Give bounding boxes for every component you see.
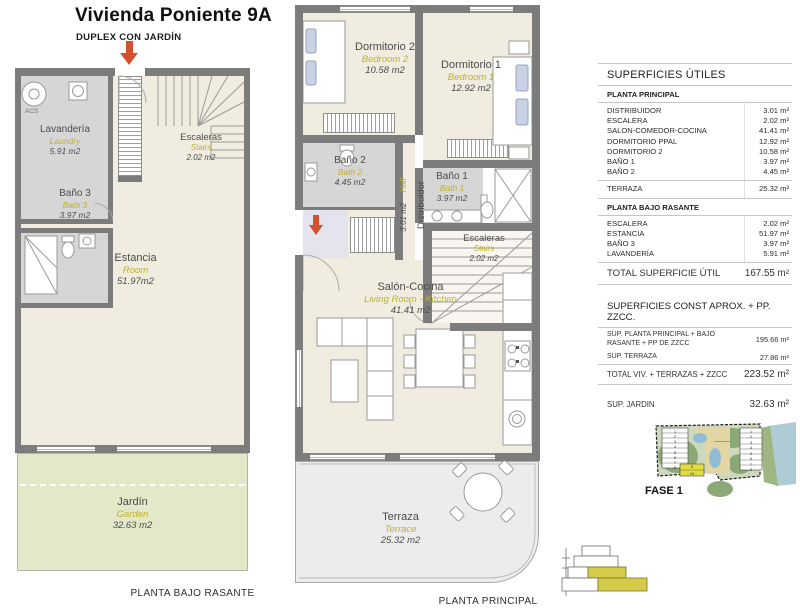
total-label: TOTAL VIV. + TERRAZAS + ZZCC <box>607 370 727 379</box>
room-label-bano2: Baño 2 Bath 2 4.45 m2 <box>317 155 383 187</box>
room-name: Escaleras <box>445 233 523 244</box>
total-value: 223.52 m² <box>744 369 789 380</box>
row-label: BAÑO 3 <box>607 239 635 249</box>
room-area: 2.02 m2 <box>155 153 247 162</box>
arrow-head <box>309 225 323 235</box>
garden-row: SUP. JARDIN 32.63 m² <box>598 385 792 412</box>
window <box>37 445 95 453</box>
room-name-en: Laundry <box>21 136 109 146</box>
room-label-bano1: Baño 1 Bath 1 3.97 m2 <box>423 171 481 203</box>
row-value: 41.41 m² <box>745 126 789 136</box>
wall-segment <box>423 223 532 231</box>
room-area: 32.63 m2 <box>70 520 195 531</box>
room-name: Estancia <box>73 252 198 265</box>
total-row: TOTAL SUPERFICIE ÚTIL 167.55 m² <box>598 263 792 284</box>
row-value: 10.58 m² <box>745 147 789 157</box>
room-name: Dormitorio 2 <box>340 41 430 54</box>
room-name-en: Bedroom 2 <box>340 54 430 65</box>
total-label: TOTAL SUPERFICIE ÚTIL <box>607 268 720 279</box>
room-label-bano3: Baño 3 Bath 3 3.97 m2 <box>43 188 107 220</box>
room-area: 25.32 m2 <box>353 535 448 546</box>
row-label: SALON-COMEDOR-COCINA <box>607 126 707 136</box>
wall-segment <box>303 135 415 143</box>
row-label: ESCALERA <box>607 219 648 229</box>
room-label-escaleras: Escaleras Stairs 2.02 m2 <box>155 132 247 162</box>
row-label: DISTRIBUIDOR <box>607 106 661 116</box>
unit-number: 10 <box>680 471 704 476</box>
row-value: 2.02 m² <box>745 219 789 229</box>
table-row: ESCALERA2.02 m² <box>598 219 792 229</box>
wall-segment <box>410 5 470 13</box>
room-name-en: Bath 3 <box>43 200 107 210</box>
room-name-en: Stairs <box>445 244 523 253</box>
row-label: TERRAZA <box>607 184 642 194</box>
wall-segment <box>95 445 117 453</box>
row-value: 3.97 m² <box>745 239 789 249</box>
wall-segment <box>295 407 303 453</box>
arrow-head <box>120 53 138 65</box>
wall-segment <box>295 255 303 350</box>
row-value: 4.45 m² <box>745 167 789 177</box>
room-name: Escaleras <box>155 132 247 143</box>
room-name-en: Garden <box>70 509 195 520</box>
floor-plan-lower: ACS Lavandería Laundry 5.91 m2 Escaleras… <box>15 68 250 575</box>
table-row: DORMITORIO 210.58 m² <box>598 147 792 157</box>
building-section-diagram <box>552 536 687 602</box>
table-body: ESCALERA2.02 m² ESTANCIA51.97 m² BAÑO 33… <box>598 216 792 263</box>
room-area: 4.45 m2 <box>317 177 383 187</box>
unit-number: 5 <box>740 451 762 456</box>
unit-number: 3 <box>740 440 762 445</box>
row-value: 5.91 m² <box>745 249 789 259</box>
row-value: 51.97 m² <box>745 229 789 239</box>
room-name-en: Stairs <box>155 143 247 152</box>
table-row: DORMITORIO PPAL12.92 m² <box>598 137 792 147</box>
unit-number: 9 <box>680 464 704 469</box>
room-label-lavanderia: Lavandería Laundry 5.91 m2 <box>21 124 109 156</box>
room-name: Terraza <box>353 511 448 524</box>
room-area: 51.97m2 <box>73 276 198 287</box>
row-value: 27.86 m² <box>745 353 789 362</box>
table-body: TERRAZA25.32 m² <box>598 181 792 197</box>
arrow-stem <box>313 215 319 225</box>
room-name-en: Room <box>73 265 198 276</box>
room-area: 10.58 m2 <box>340 65 430 76</box>
row-value: 195.66 m² <box>745 335 789 344</box>
row-value: 12.92 m² <box>745 137 789 147</box>
wall-segment <box>244 68 250 453</box>
caption-lower-plan: PLANTA BAJO RASANTE <box>110 588 275 599</box>
floor-plan-sheet: Vivienda Poniente 9A DUPLEX CON JARDÍN <box>0 0 800 609</box>
table-row: TERRAZA25.32 m² <box>598 184 792 194</box>
room-name: Lavandería <box>21 124 109 136</box>
window <box>400 453 495 461</box>
table-row: SALON-COMEDOR-COCINA41.41 m² <box>598 126 792 136</box>
room-area: 3.01 m2 <box>399 203 408 232</box>
window <box>470 5 513 13</box>
table-body: DISTRIBUIDOR3.01 m² ESCALERA2.02 m² SALO… <box>598 103 792 180</box>
table-row: LAVANDERÍA5.91 m² <box>598 249 792 259</box>
room-label-estancia: Estancia Room 51.97m2 <box>73 252 198 287</box>
table-row: ESTANCIA51.97 m² <box>598 229 792 239</box>
window <box>340 5 410 13</box>
row-value: 3.01 m² <box>745 106 789 116</box>
room-name: Dormitorio 1 <box>425 59 517 72</box>
unit-number: 2 <box>740 434 762 439</box>
window <box>295 350 303 407</box>
room-label-terraza: Terraza Terrace 25.32 m2 <box>353 511 448 546</box>
room-name: Baño 1 <box>423 171 481 183</box>
wall-segment <box>145 68 250 76</box>
row-value: 3.97 m² <box>745 157 789 167</box>
wall-segment <box>423 160 532 168</box>
floor-plan-main: Dormitorio 2 Bedroom 2 10.58 m2 Dormitor… <box>295 5 540 590</box>
row-label: SUP. TERRAZA <box>607 353 657 362</box>
table-title: SUPERFICIES CONST APROX. + PP. ZZCC. <box>598 296 792 327</box>
wall-segment <box>295 5 303 210</box>
section-heading: PLANTA PRINCIPAL <box>598 86 792 102</box>
room-area: 5.91 m2 <box>21 146 109 156</box>
wall-segment <box>15 445 37 453</box>
room-label-escaleras-main: Escaleras Stairs 2.02 m2 <box>445 233 523 263</box>
room-name: Distribuidor <box>416 181 427 229</box>
row-value: 2.02 m² <box>745 116 789 126</box>
row-label: LAVANDERÍA <box>607 249 654 259</box>
row-label: BAÑO 2 <box>607 167 635 177</box>
room-name: Jardín <box>70 496 195 509</box>
wall-segment <box>495 453 540 461</box>
room-area: 3.97 m2 <box>423 193 481 203</box>
table-row: BAÑO 13.97 m² <box>598 157 792 167</box>
room-name-en: Bath 1 <box>423 183 481 193</box>
row-label: SUP. JARDIN <box>607 400 655 409</box>
room-area: 3.97 m2 <box>43 210 107 220</box>
site-plan-highlight-unit-numbers: 910 <box>680 464 704 476</box>
section-heading: PLANTA BAJO RASANTE <box>598 199 792 215</box>
room-label-jardin: Jardín Garden 32.63 m2 <box>70 496 195 531</box>
room-name-en: Living Room - Kitchen <box>343 294 478 305</box>
table-row: BAÑO 24.45 m² <box>598 167 792 177</box>
page-title: Vivienda Poniente 9A <box>75 5 272 27</box>
room-area: 2.02 m2 <box>445 254 523 263</box>
divider <box>598 284 792 285</box>
room-label-dormitorio2: Dormitorio 2 Bedroom 2 10.58 m2 <box>340 41 430 76</box>
wall-segment <box>118 176 142 182</box>
unit-number: 4 <box>740 445 762 450</box>
total-row: TOTAL VIV. + TERRAZAS + ZZCC 223.52 m² <box>598 365 792 384</box>
room-label-dormitorio1: Dormitorio 1 Bedroom 1 12.92 m2 <box>425 59 517 94</box>
row-value: 25.32 m² <box>745 184 789 194</box>
surfaces-const-table: SUPERFICIES CONST APROX. + PP. ZZCC. SUP… <box>598 296 792 412</box>
wall-segment <box>295 453 310 461</box>
row-label: ESTANCIA <box>607 229 644 239</box>
room-name-en: Hall <box>399 178 408 192</box>
wall-segment <box>303 5 340 13</box>
table-row: SUP. TERRAZA 27.86 m² <box>598 350 792 364</box>
row-label: ESCALERA <box>607 116 648 126</box>
arrow-stem <box>126 41 133 53</box>
room-name: Baño 2 <box>317 155 383 167</box>
site-plan-right-unit-numbers: 12345678 <box>740 429 762 472</box>
room-name-en: Bedroom 1 <box>425 72 517 83</box>
row-label: DORMITORIO PPAL <box>607 137 677 147</box>
row-label: DORMITORIO 2 <box>607 147 663 157</box>
table-row: BAÑO 33.97 m² <box>598 239 792 249</box>
row-label: SUP. PLANTA PRINCIPAL + BAJO RASANTE + P… <box>607 331 733 348</box>
table-row: DISTRIBUIDOR3.01 m² <box>598 106 792 116</box>
surfaces-utiles-table: SUPERFICIES ÚTILES PLANTA PRINCIPAL DIST… <box>598 63 792 285</box>
room-area: 12.92 m2 <box>425 83 517 94</box>
total-value: 167.55 m² <box>745 268 789 279</box>
unit-number: 7 <box>740 462 762 467</box>
window <box>310 453 385 461</box>
wall-segment <box>532 5 540 453</box>
table-title: SUPERFICIES ÚTILES <box>598 64 792 85</box>
wall-segment <box>513 5 532 13</box>
row-label: BAÑO 1 <box>607 157 635 167</box>
table-row: SUP. PLANTA PRINCIPAL + BAJO RASANTE + P… <box>598 328 792 350</box>
unit-number: 8 <box>740 467 762 472</box>
wall-segment <box>211 445 250 453</box>
caption-main-plan: PLANTA PRINCIPAL <box>408 596 568 607</box>
wall-segment <box>15 68 115 76</box>
acs-label: ACS <box>25 108 38 115</box>
row-value: 32.63 m² <box>745 399 789 410</box>
room-area: 41.41 m2 <box>343 305 478 316</box>
table-row: ESCALERA2.02 m² <box>598 116 792 126</box>
room-label-salon: Salón-Cocina Living Room - Kitchen 41.41… <box>343 281 478 316</box>
unit-number: 1 <box>740 429 762 434</box>
room-name: Baño 3 <box>43 188 107 200</box>
room-name-en: Terrace <box>353 524 448 535</box>
window <box>117 445 211 453</box>
wall-segment <box>385 453 400 461</box>
room-label-distribuidor: 3.01 m2 Hall Distribuidor <box>393 150 427 260</box>
room-name: Salón-Cocina <box>343 281 478 294</box>
fase-label: FASE 1 <box>645 485 683 497</box>
room-name-en: Bath 2 <box>317 167 383 177</box>
unit-number: 6 <box>740 456 762 461</box>
wall-segment <box>450 323 532 331</box>
